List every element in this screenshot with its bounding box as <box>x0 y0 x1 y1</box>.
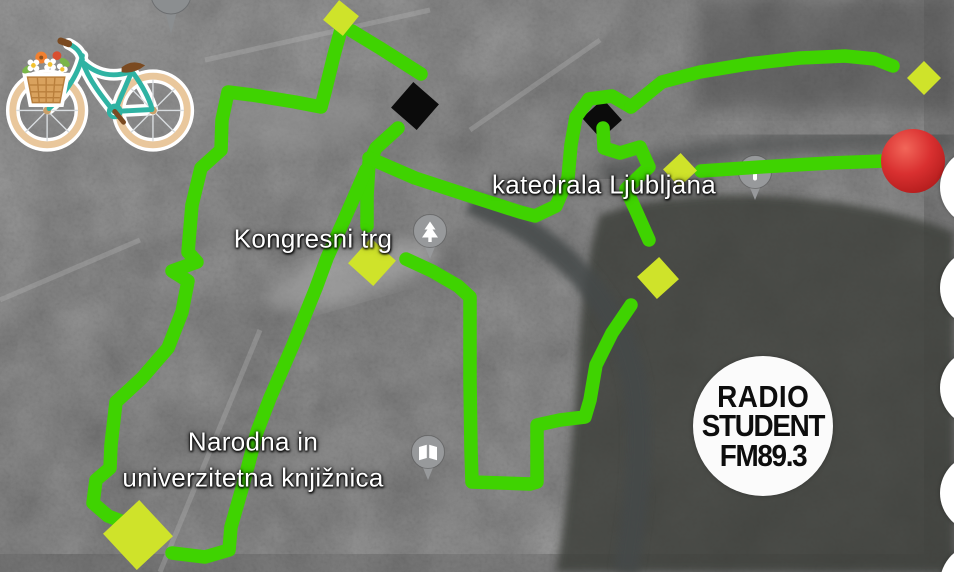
route-line-big-diagonal <box>172 170 366 557</box>
map-canvas[interactable]: RADIO STUDENT FM89.3 Kongresni trg kated… <box>0 0 954 572</box>
yellow-diamond-sticker[interactable] <box>347 237 397 287</box>
route-line-east-wavy <box>631 56 893 107</box>
radio-logo-line2: STUDENT <box>702 411 824 440</box>
route-line-to-endpoint <box>701 161 884 171</box>
radio-logo-line3: FM89.3 <box>720 441 806 470</box>
yellow-diamond-sticker[interactable] <box>636 256 680 300</box>
route-line-squiggle <box>603 128 649 240</box>
radio-logo-line1: RADIO <box>717 382 809 411</box>
yellow-diamond-sticker[interactable] <box>662 152 697 187</box>
basket-with-flowers <box>21 51 72 102</box>
route-line-branch-down <box>367 128 398 226</box>
tree-pin[interactable] <box>414 215 447 260</box>
library-pin[interactable] <box>412 436 445 481</box>
route-end-point[interactable] <box>881 129 945 193</box>
bicycle-illustration <box>13 41 187 145</box>
yellow-diamond-sticker[interactable] <box>102 499 174 571</box>
yellow-diamond-sticker[interactable] <box>907 61 941 95</box>
bicycle-sticker[interactable] <box>4 16 200 154</box>
route-line-top-link <box>352 31 421 74</box>
radio-student-logo-sticker[interactable]: RADIO STUDENT FM89.3 <box>693 356 833 496</box>
